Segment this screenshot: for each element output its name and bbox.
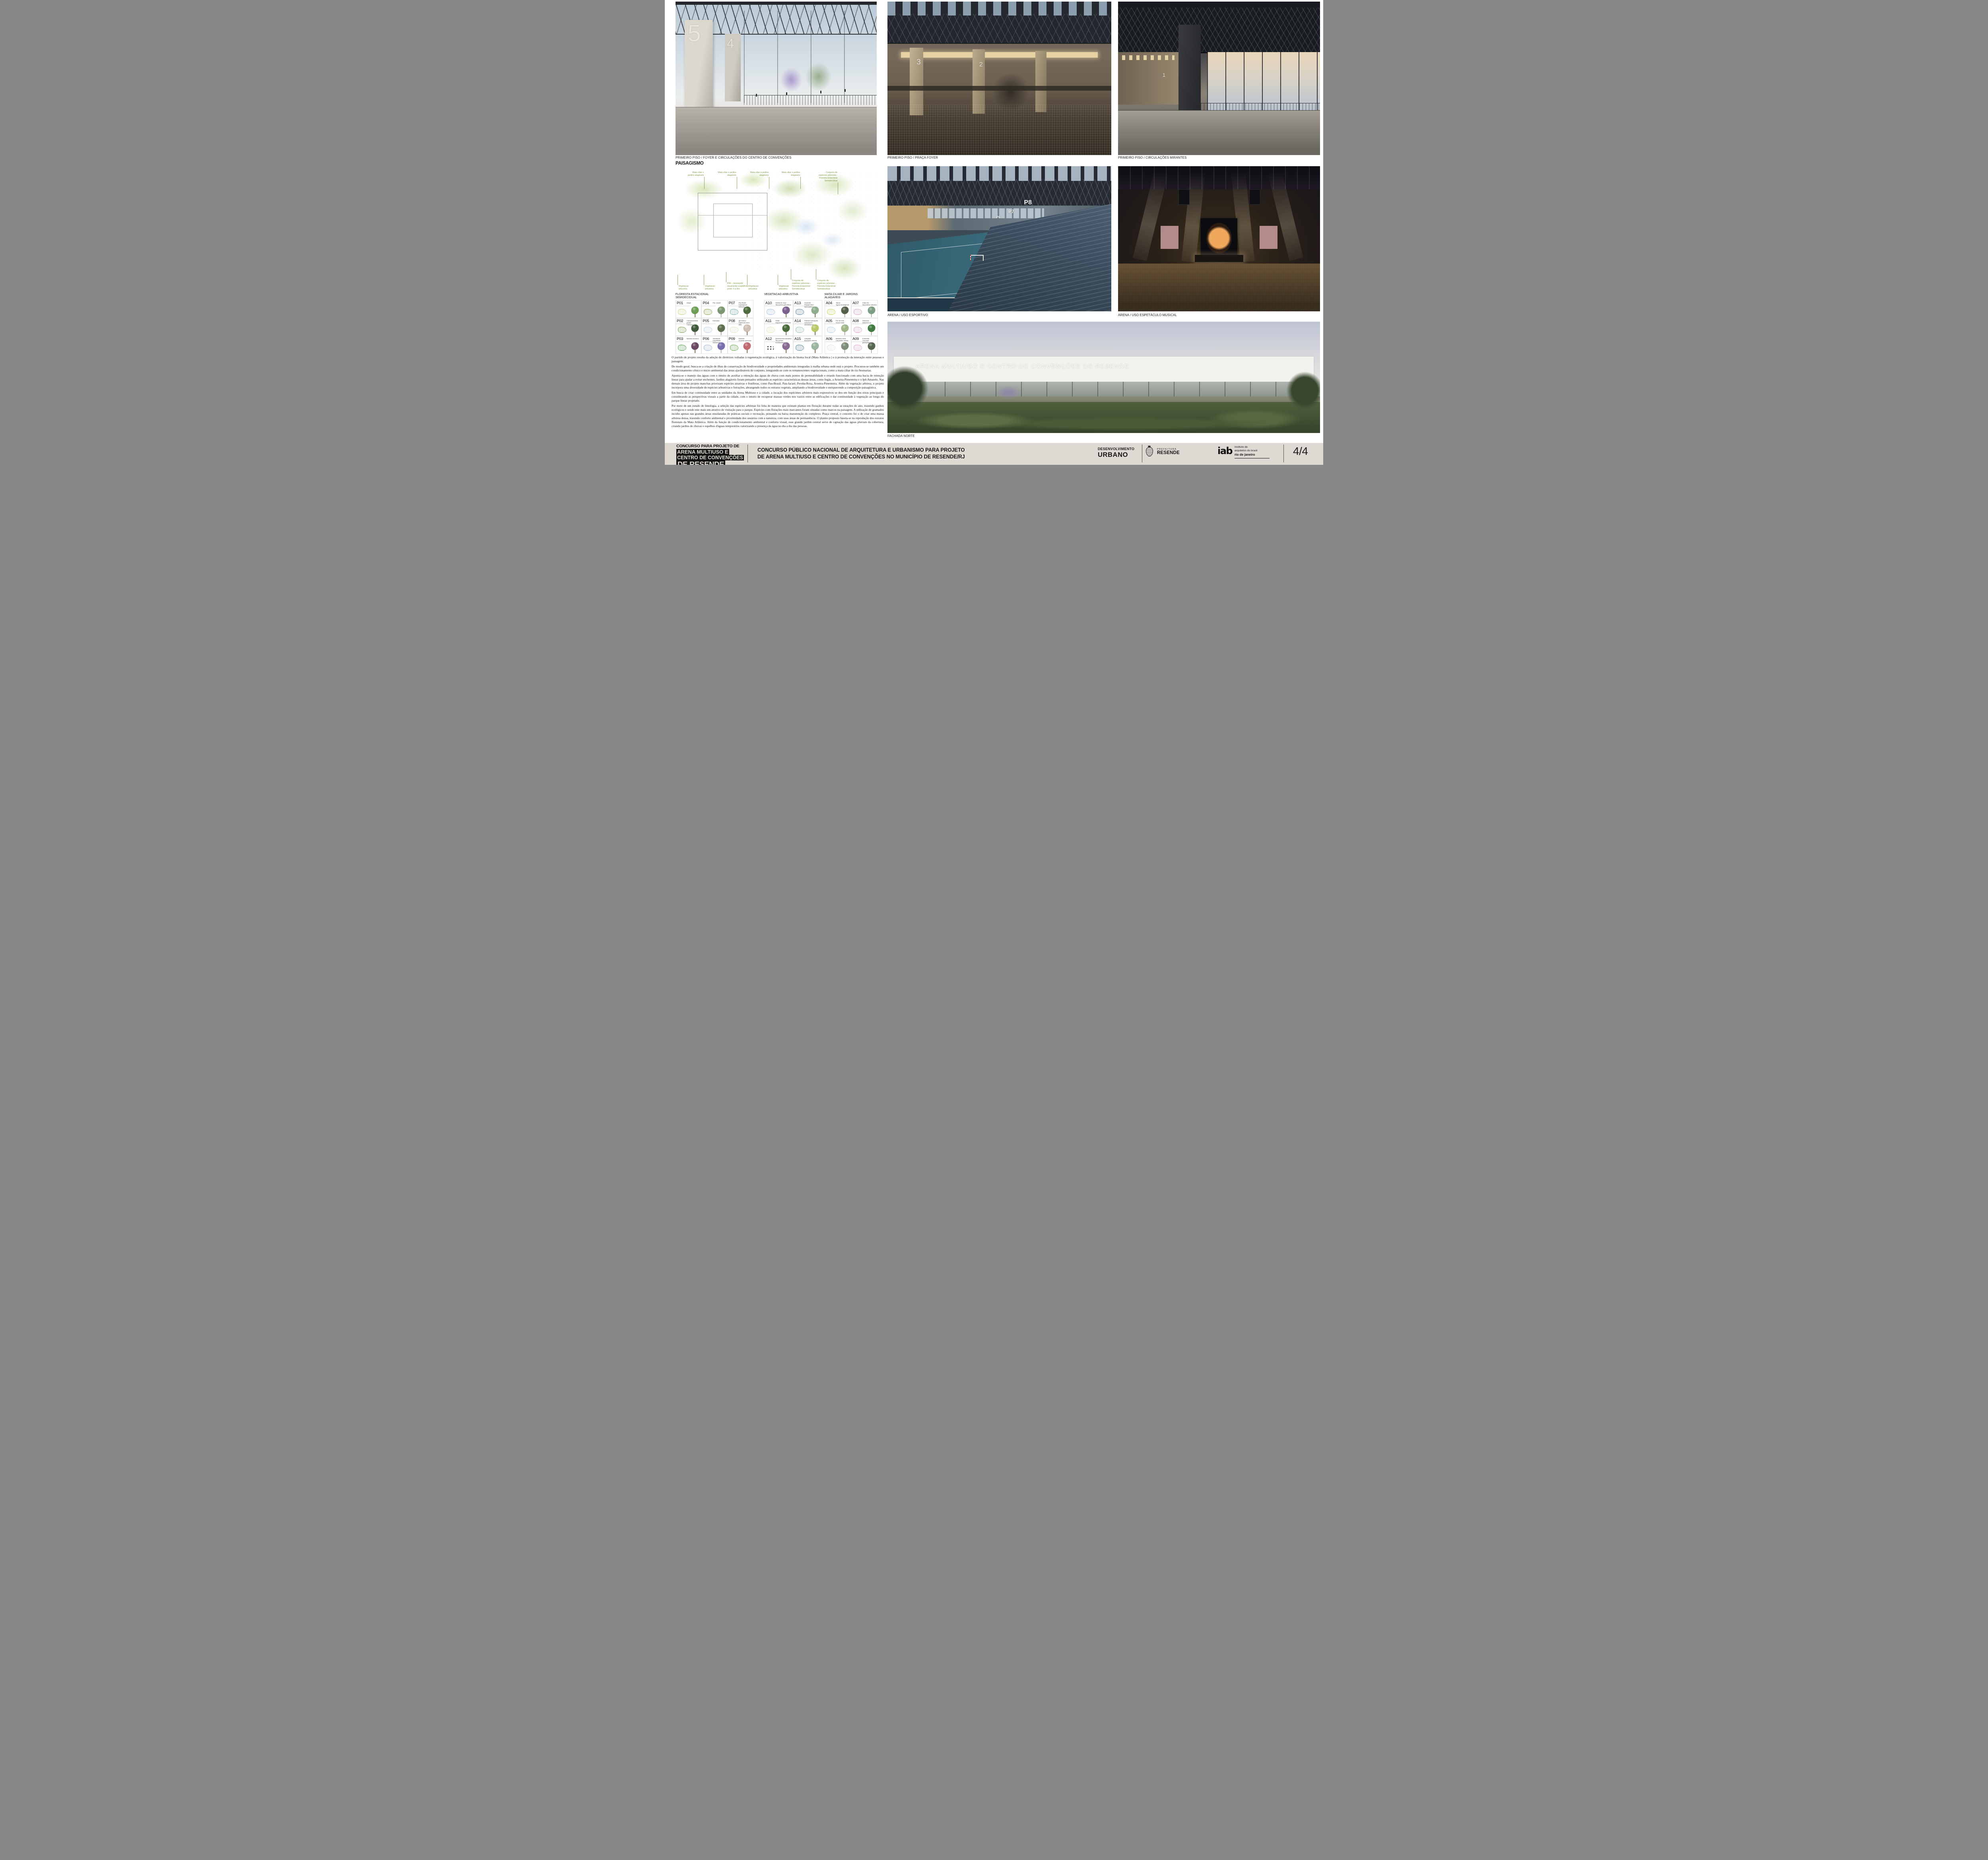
plant-code: P08 <box>729 319 735 323</box>
caption-fachada-norte: FACHADA NORTE <box>887 434 915 438</box>
legend-item: A14Palmeira petrópolis Lytocaryum weddel… <box>793 318 822 336</box>
column-number: 1 <box>1163 72 1165 78</box>
plant-species-name: Orelha de onça Tibouchina grandiflora <box>775 302 792 306</box>
plant-trunk <box>721 349 722 353</box>
building-glass-band <box>894 382 1313 396</box>
legend-item: A15Carqueja Baccharis trimera <box>793 336 822 354</box>
plant-species-name: Falsa íris Neomarica caerulea <box>862 302 877 306</box>
plant-canopy <box>868 307 875 314</box>
plant-trunk <box>747 349 747 353</box>
plant-photo <box>742 324 753 336</box>
column-number: 4 <box>727 37 734 50</box>
plant-canopy <box>782 342 790 350</box>
plant-species-name: Taboa Typha domingensii <box>836 302 850 306</box>
cell-divider <box>794 324 809 324</box>
plant-canopy <box>782 324 790 332</box>
plant-code: P09 <box>729 337 735 341</box>
plant-species-name: Embauba <box>712 320 726 322</box>
plant-trunk <box>695 332 696 335</box>
plant-photo <box>839 324 850 336</box>
plant-photo <box>780 324 792 336</box>
cell-divider <box>728 324 742 324</box>
plan-swatch <box>796 327 804 333</box>
legend-grid: A10Orelha de onça Tibouchina grandiflora… <box>764 300 822 354</box>
plant-photo <box>839 342 850 353</box>
prefeitura-resende-logo: PREFEITURA RESENDE <box>1157 448 1180 456</box>
concrete-column <box>1178 25 1201 111</box>
cell-divider <box>765 306 780 306</box>
legend-item: A11Triális Galphimia brasiliensis <box>764 318 793 336</box>
legend-group: VEGETACAO ARBUSTIVAA10Orelha de onça Tib… <box>764 293 822 354</box>
legend-group: MATA CILIAR E JARDINS ALAGAVEISA04Taboa … <box>825 293 878 354</box>
stage <box>1195 255 1243 262</box>
plan-annotation: Mata ciliar e jardins alagáveis <box>718 171 736 177</box>
paragraph: Aponta-se o manejo das águas com o intui… <box>672 374 884 390</box>
presentation-board: 54 32 1 PRIMEIRO PISO / FOYER E CIRCULAÇ… <box>665 0 1323 465</box>
annotation-leader-line <box>704 177 705 189</box>
paved-floor <box>676 107 877 155</box>
plant-canopy <box>744 307 751 314</box>
truss-web <box>1118 8 1320 52</box>
plant-code: A12 <box>765 337 772 341</box>
plan-swatch <box>827 309 835 315</box>
cell-divider <box>702 342 716 342</box>
plan-swatch <box>730 309 738 315</box>
paragraph: Em busca de criar continuidade entre as … <box>672 391 884 403</box>
plan-annotation: Conjunto de espécies arboreas - Floresta… <box>817 280 836 291</box>
truss-web <box>887 14 1111 43</box>
legend-grid: A04Taboa Typha domingensiiA05Flor de vel… <box>825 300 878 354</box>
person-silhouette <box>756 94 757 97</box>
footer-divider <box>747 445 748 462</box>
plant-code: A06 <box>826 337 832 341</box>
plant-code: A15 <box>794 337 801 341</box>
plan-annotation: Mata ciliar e jardins alagáveis <box>750 171 769 177</box>
plan-swatch <box>730 345 738 351</box>
glazing-mullions <box>1207 52 1320 111</box>
plant-code: A04 <box>826 301 832 305</box>
plant-trunk <box>815 349 816 353</box>
urbano-label: URBANO <box>1098 451 1134 458</box>
hanging-banner <box>1249 189 1260 205</box>
plant-trunk <box>786 314 787 317</box>
cell-divider <box>676 306 690 306</box>
annotation-leader-line <box>816 269 816 280</box>
legend-item: A06Maranta cinza Ctenanthe setosa <box>825 336 851 354</box>
legend-group-title: MATA CILIAR E JARDINS ALAGAVEIS <box>825 293 878 300</box>
glazing-band <box>928 208 1044 219</box>
plant-trunk <box>747 332 747 335</box>
plant-photo <box>716 306 727 318</box>
person-silhouette <box>820 91 821 93</box>
landscape-plan: Mata ciliar e jardins alagáveisMata cili… <box>676 168 878 292</box>
plan-swatch <box>854 327 862 333</box>
caption-render-praca: PRIMEIRO PISO / PRAÇA FOYER <box>887 156 938 159</box>
plant-code: A07 <box>852 301 859 305</box>
plan-swatch <box>678 309 686 315</box>
stage-main-screen <box>1201 218 1237 258</box>
plant-species-name: Manacá da serra <box>687 338 701 340</box>
iab-line: rio de janeiro <box>1235 453 1270 457</box>
desenvolvimento-label: DESENVOLVIMENTO <box>1098 447 1134 451</box>
render-arena-musical <box>1118 166 1320 311</box>
stage-side-screen <box>1161 226 1179 249</box>
plant-trunk <box>845 349 845 353</box>
legend-item: P08Ipê branco Tabebuia roseo-alba <box>728 318 753 336</box>
plant-canopy <box>868 324 875 332</box>
annotation-leader-line <box>737 177 737 189</box>
plant-trunk <box>695 349 696 353</box>
light-strip <box>901 52 1098 58</box>
iab-underline <box>1235 458 1270 458</box>
caption-render-mirantes: PRIMEIRO PISO / CIRCULAÇÕES MIRANTES <box>1118 156 1187 159</box>
plant-species-name: Maranta cinza Ctenanthe setosa <box>836 338 850 342</box>
plant-canopy <box>812 307 819 314</box>
building-footprint <box>698 193 767 250</box>
plant-code: P02 <box>677 319 683 323</box>
cell-divider <box>852 306 866 306</box>
plant-canopy <box>744 342 751 350</box>
legend-item: P01Araçá <box>676 300 701 318</box>
plant-canopy <box>717 342 725 350</box>
cell-divider <box>765 324 780 324</box>
truss-web <box>887 179 1111 206</box>
plant-canopy <box>691 307 699 314</box>
plant-code: P04 <box>703 301 709 305</box>
plant-trunk <box>721 314 722 317</box>
column <box>1035 51 1046 112</box>
plant-trunk <box>871 314 872 317</box>
plan-swatch <box>854 345 862 351</box>
plan-swatch <box>796 345 804 351</box>
legend-group-title: VEGETACAO ARBUSTIVA <box>764 293 822 300</box>
caption-arena-esportivo: ARENA / USO ESPORTIVO <box>887 313 928 317</box>
column-number: 2 <box>979 62 983 68</box>
column-number: 3 <box>916 58 921 66</box>
plant-photo <box>689 306 701 318</box>
plant-code: A11 <box>765 319 771 323</box>
plant-species-name: Carqueja Baccharis trimera <box>804 338 821 342</box>
plant-species-name: Heliconia Heliconia sp <box>862 320 877 324</box>
plant-canopy <box>717 307 725 314</box>
plan-annotation: Conjunto de espécies arboreas - Floresta… <box>819 171 837 183</box>
plan-swatch <box>767 327 775 333</box>
plan-swatch <box>704 309 712 315</box>
cell-divider <box>702 324 716 324</box>
cell-divider <box>852 342 866 342</box>
legend-item: A07Falsa íris Neomarica caerulea <box>851 300 878 318</box>
legend-item: P04Pau Jacaré <box>701 300 727 318</box>
desenvolvimento-urbano-logo: DESENVOLVIMENTO URBANO <box>1098 447 1134 458</box>
foreground-vegetation <box>887 402 1320 433</box>
paragraph: De modo geral, busca-se a criação de ilh… <box>672 365 884 373</box>
futsal-goal <box>970 255 984 261</box>
plant-species-name: Triális Galphimia brasiliensis <box>775 320 792 324</box>
plant-trunk <box>845 314 845 317</box>
skylight-strips <box>887 166 1111 181</box>
legend-item: A12Quaresmeira arbustiva Tibouchina mori… <box>764 336 793 354</box>
tree-silhouette <box>1281 366 1320 415</box>
annotation-leader-line <box>778 275 778 285</box>
plant-code: P06 <box>703 337 709 341</box>
annotation-leader-line <box>747 275 747 285</box>
ceiling-lights <box>1122 55 1175 60</box>
plan-swatch <box>730 327 738 333</box>
plant-canopy <box>782 307 790 314</box>
plant-photo <box>809 324 821 336</box>
plant-legend: FLORESTA ESTACIONAL SEMIDECIDUALP01Araçá… <box>676 293 878 355</box>
cell-divider <box>794 306 809 306</box>
plant-trunk <box>871 332 872 335</box>
cell-divider <box>728 306 742 306</box>
plant-canopy <box>717 324 725 332</box>
plant-photo <box>866 324 877 336</box>
legend-group: FLORESTA ESTACIONAL SEMIDECIDUALP01Araçá… <box>676 293 753 354</box>
walkway <box>1118 110 1320 155</box>
footer-divider <box>1142 445 1142 462</box>
plan-annotation: Vegetacao arbustiva <box>779 285 789 291</box>
plan-swatch <box>767 309 775 315</box>
legend-item: P06Jacaranda cuspidifolia Jacarandá <box>701 336 727 354</box>
paragraph: O partido de projeto resulta da adoção d… <box>672 355 884 363</box>
plant-code: A09 <box>852 337 859 341</box>
iab-line: instituto de <box>1235 446 1270 449</box>
annotation-leader-line <box>678 275 678 285</box>
plant-canopy <box>841 324 848 332</box>
stand-sector-sign: P8 <box>1024 200 1032 206</box>
cell-divider <box>676 342 690 342</box>
plant-species-name: Paineira Chorisia speciosa <box>739 338 753 342</box>
plan-swatch <box>767 346 774 351</box>
iab-logo-text: instituto de arquitetos do brasil rio de… <box>1235 446 1270 458</box>
plant-trunk <box>695 314 696 317</box>
legend-item: P07Pau Brasil Caesalpinia echinata <box>728 300 753 318</box>
render-foyer: 54 <box>676 2 877 155</box>
plant-photo <box>689 324 701 336</box>
person-silhouette <box>845 89 846 92</box>
column <box>973 49 985 114</box>
stage-side-screen <box>1260 226 1278 249</box>
competition-title-line2: DE ARENA MULTIUSO E CENTRO DE CONVENÇÕES… <box>757 453 965 460</box>
plant-code: P05 <box>703 319 709 323</box>
skylight-strips <box>887 2 1111 16</box>
resende-coat-of-arms-icon <box>1145 445 1154 458</box>
logo-box-line: ARENA MULTIUSO E <box>676 449 729 455</box>
plant-trunk <box>786 332 787 335</box>
legend-item: A13Guaimbé Philodendron bipinnatifidum <box>793 300 822 318</box>
plant-photo <box>716 324 727 336</box>
plan-annotation: Conjunto de espécies arboreas - Floresta… <box>792 280 811 291</box>
annotation-leader-line <box>800 177 801 189</box>
hanging-banner <box>1178 189 1189 205</box>
plant-code: A14 <box>794 319 801 323</box>
plan-swatch <box>827 345 835 351</box>
tree <box>800 57 837 97</box>
plant-photo <box>780 342 792 353</box>
cell-divider <box>825 324 839 324</box>
plan-swatch <box>704 345 712 351</box>
page-number: 4/4 <box>1293 445 1308 458</box>
plant-photo <box>780 306 792 318</box>
logo-box-line: CENTRO DE CONVENÇÕES <box>676 455 744 461</box>
plant-canopy <box>744 324 751 332</box>
plant-photo <box>866 342 877 353</box>
legend-group-title: FLORESTA ESTACIONAL SEMIDECIDUAL <box>676 293 753 300</box>
cell-divider <box>702 306 716 306</box>
plant-trunk <box>815 314 816 317</box>
person-silhouette <box>786 92 787 95</box>
plan-annotation: Mata ciliar e jardins alagáveis <box>688 171 704 177</box>
plant-code: A10 <box>765 301 772 305</box>
plan-swatch <box>796 309 804 315</box>
plant-photo <box>742 306 753 318</box>
cell-divider <box>825 306 839 306</box>
plan-swatch <box>678 345 686 351</box>
logo-box-line: DE RESENDE <box>676 460 725 465</box>
audience-crowd <box>1118 264 1320 311</box>
interior-band <box>1118 52 1178 104</box>
legend-item: P09Paineira Chorisia speciosa <box>728 336 753 354</box>
legend-item: A09Embauba Cecropia pachystachya <box>851 336 878 354</box>
plant-canopy <box>841 307 848 314</box>
plan-annotation: Vegetacao arbustiva <box>705 285 715 291</box>
caption-render-foyer: PRIMEIRO PISO / FOYER E CIRCULAÇÕES DO C… <box>676 156 791 159</box>
building-facade-sign: ARENA MULTIUSO E CENTRO DE CONVENÇÕES DE… <box>916 363 1129 370</box>
plant-canopy <box>691 324 699 332</box>
plant-trunk <box>871 349 872 353</box>
render-mirantes: 1 <box>1118 2 1320 155</box>
cell-divider <box>825 342 839 342</box>
legend-item: A08Heliconia Heliconia sp <box>851 318 878 336</box>
legend-item: A05Flor de vela Senna alata <box>825 318 851 336</box>
footer-divider <box>1283 445 1284 462</box>
plan-swatch <box>854 309 862 315</box>
competition-title: CONCURSO PÚBLICO NACIONAL DE ARQUITETURA… <box>757 447 965 460</box>
plant-trunk <box>721 332 722 335</box>
plant-code: A08 <box>852 319 859 323</box>
plan-annotation: Vegetacao arbustiva <box>748 285 758 291</box>
plant-canopy <box>812 342 819 350</box>
annotation-leader-line <box>791 269 791 280</box>
plan-annotation: Vegetacao arbustiva <box>679 285 689 291</box>
plan-annotation: Mata ciliar e jardins alagáveis <box>782 171 800 177</box>
legend-item: A10Orelha de onça Tibouchina grandiflora <box>764 300 793 318</box>
plant-species-name: Pau Jacaré <box>712 302 726 304</box>
plant-code: A05 <box>826 319 832 323</box>
annotation-leader-line <box>769 177 769 189</box>
annotation-leader-line <box>704 275 704 285</box>
render-fachada-norte: ARENA MULTIUSO E CENTRO DE CONVENÇÕES DE… <box>887 322 1320 433</box>
plant-photo <box>809 306 821 318</box>
stand-sector-sign: P7 <box>1008 209 1014 214</box>
plant-trunk <box>845 332 845 335</box>
legend-item: P03Manacá da serra <box>676 336 701 354</box>
legend-item: A04Taboa Typha domingensii <box>825 300 851 318</box>
iab-line: arquitetos do brasil <box>1235 449 1270 453</box>
render-arena-esportivo: P8P7P6 <box>887 166 1111 311</box>
plant-canopy <box>812 324 819 332</box>
iab-logo-icon: iab <box>1217 445 1232 456</box>
render-praca: 32 <box>887 2 1111 155</box>
tree-silhouette <box>986 66 1035 118</box>
plant-code: A13 <box>794 301 801 305</box>
plant-species-name: Araçá <box>687 302 701 304</box>
cell-divider <box>794 342 809 342</box>
cell-divider <box>676 324 690 324</box>
plant-trunk <box>815 332 816 335</box>
competition-logo-box: CONCURSO PARA PROJETO DE ARENA MULTIUSO … <box>676 444 744 465</box>
legend-item: P02Campomanesia phaea Cambuci <box>676 318 701 336</box>
plant-canopy <box>691 342 699 350</box>
caption-arena-musical: ARENA / USO ESPETÁCULO MUSICAL <box>1118 313 1177 317</box>
paragraph: Por meio de um estudo de fenologia, a se… <box>672 404 884 428</box>
roof-truss <box>1118 166 1320 189</box>
annotation-leader-line <box>838 183 838 194</box>
plan-annotation: P06 - Jacarandá Jacaranda cuspidifolia p… <box>727 282 748 291</box>
plant-photo <box>809 342 821 353</box>
logo-box-line: CONCURSO PARA PROJETO DE <box>676 444 739 449</box>
plant-photo <box>716 342 727 353</box>
plan-swatch <box>678 327 686 333</box>
plant-code: P03 <box>677 337 683 341</box>
footer-band: CONCURSO PARA PROJETO DE ARENA MULTIUSO … <box>665 443 1323 465</box>
cell-divider <box>728 342 742 342</box>
plant-photo <box>839 306 850 318</box>
plant-photo <box>689 342 701 353</box>
section-heading-paisagismo: PAISAGISMO <box>676 161 704 166</box>
text-block: O partido de projeto resulta da adoção d… <box>672 355 884 429</box>
plant-trunk <box>786 349 787 353</box>
stand-sector-sign: P6 <box>996 216 1000 219</box>
plan-swatch <box>827 327 835 333</box>
plant-canopy <box>841 342 848 350</box>
plant-photo <box>742 342 753 353</box>
resende-label: RESENDE <box>1157 450 1180 456</box>
cell-divider <box>852 324 866 324</box>
legend-grid: P01AraçáP02Campomanesia phaea CambuciP03… <box>676 300 753 354</box>
plant-photo <box>866 306 877 318</box>
guardrail <box>1201 103 1320 111</box>
cell-divider <box>765 342 780 342</box>
plant-code: P07 <box>729 301 735 305</box>
plan-swatch <box>704 327 712 333</box>
plant-canopy <box>868 342 875 350</box>
legend-item: P05Embauba <box>701 318 727 336</box>
plant-species-name: Flor de vela Senna alata <box>836 320 850 324</box>
plant-trunk <box>747 314 747 317</box>
plant-code: P01 <box>677 301 683 305</box>
competition-title-line1: CONCURSO PÚBLICO NACIONAL DE ARQUITETURA… <box>757 447 965 453</box>
column-number: 5 <box>687 21 701 45</box>
guardrail <box>744 95 877 105</box>
annotation-leader-line <box>726 272 726 282</box>
jacaranda-tree <box>991 383 1026 402</box>
